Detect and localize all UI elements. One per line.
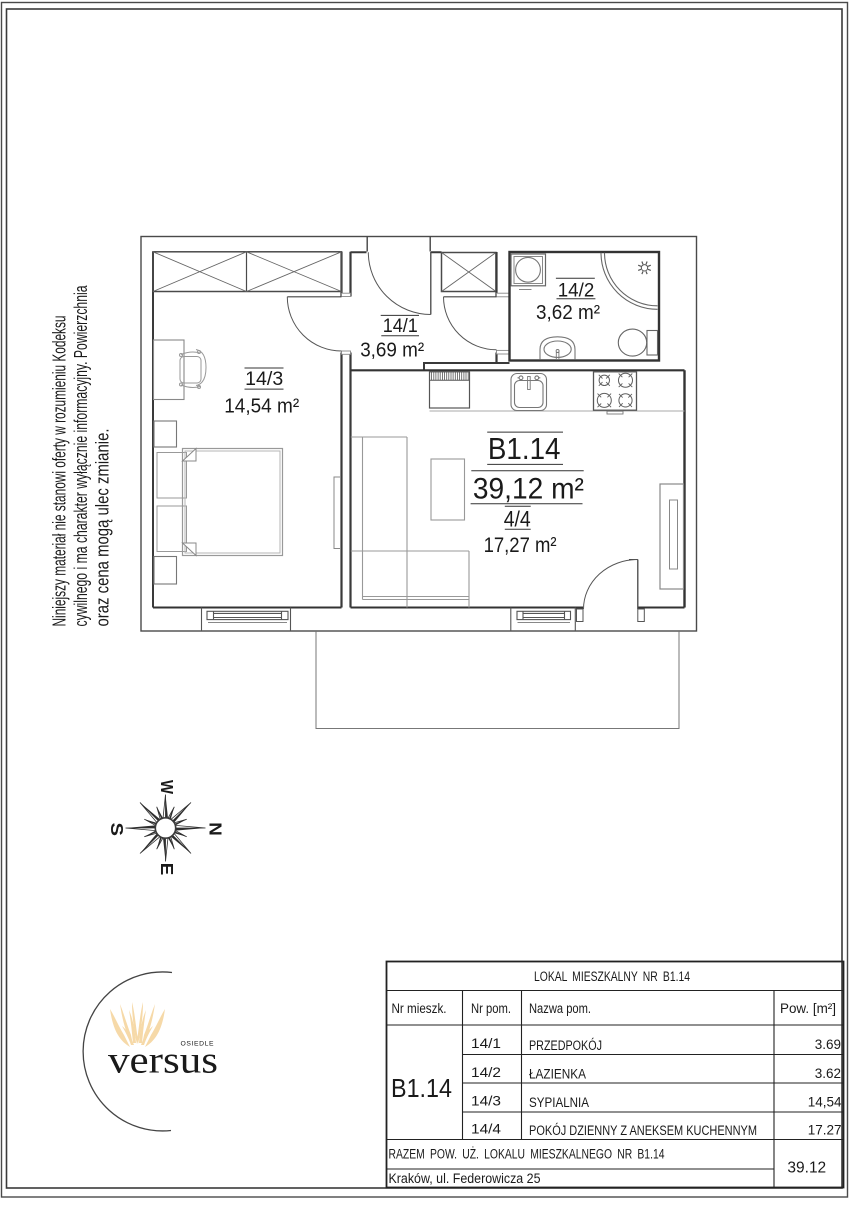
svg-text:14/1: 14/1 [383,316,418,337]
svg-text:E: E [157,863,177,876]
svg-text:B1.14: B1.14 [488,431,561,466]
svg-text:POKÓJ DZIENNY Z ANEKSEM KUCHEN: POKÓJ DZIENNY Z ANEKSEM KUCHENNYM [529,1123,757,1138]
svg-text:Nr pom.: Nr pom. [471,1001,511,1016]
svg-text:Kraków, ul. Federowicza 25: Kraków, ul. Federowicza 25 [389,1171,541,1186]
svg-text:14/3: 14/3 [245,369,283,390]
svg-text:14/2: 14/2 [558,280,595,301]
svg-text:Nr mieszk.: Nr mieszk. [392,1001,447,1016]
svg-text:N: N [205,822,225,836]
svg-text:14/4: 14/4 [471,1121,501,1137]
svg-text:S: S [107,823,127,837]
svg-text:3,69 m²: 3,69 m² [360,339,424,361]
svg-text:14/2: 14/2 [471,1064,501,1080]
svg-text:14,54: 14,54 [808,1095,842,1110]
svg-text:oraz cena mogą ulec zmianie.: oraz cena mogą ulec zmianie. [93,429,113,627]
svg-text:17.27: 17.27 [808,1123,842,1138]
svg-text:3.62: 3.62 [815,1066,841,1081]
svg-text:4/4: 4/4 [504,506,531,531]
svg-text:3.69: 3.69 [815,1037,841,1052]
svg-text:OSIEDLE: OSIEDLE [181,1041,216,1048]
svg-text:14/1: 14/1 [471,1035,501,1051]
svg-text:ŁAZIENKA: ŁAZIENKA [529,1067,586,1082]
svg-text:LOKAL MIESZKALNY NR B1.14: LOKAL MIESZKALNY NR B1.14 [534,969,690,984]
svg-text:39,12 m²: 39,12 m² [473,472,584,505]
svg-text:SYPIALNIA: SYPIALNIA [529,1095,589,1110]
svg-text:17,27 m²: 17,27 m² [484,534,557,557]
svg-text:14/3: 14/3 [471,1093,501,1109]
svg-text:Pow. [m²]: Pow. [m²] [780,1001,836,1016]
svg-text:PRZEDPOKÓJ: PRZEDPOKÓJ [529,1038,602,1053]
svg-text:14,54 m²: 14,54 m² [224,395,299,417]
svg-text:W: W [157,780,177,794]
svg-text:RAZEM POW. UŻ. LOKALU MIESZKAL: RAZEM POW. UŻ. LOKALU MIESZKALNEGO NR B1… [389,1147,665,1162]
svg-text:3,62 m²: 3,62 m² [536,302,600,324]
svg-text:cywilnego i ma charakter wyłąc: cywilnego i ma charakter wyłącznie infor… [71,285,91,627]
svg-text:39.12: 39.12 [787,1160,826,1177]
svg-text:Nazwa pom.: Nazwa pom. [529,1001,591,1016]
svg-text:B1.14: B1.14 [391,1073,452,1103]
svg-text:Niniejszy materiał nie stanowi: Niniejszy materiał nie stanowi oferty w … [50,316,70,627]
